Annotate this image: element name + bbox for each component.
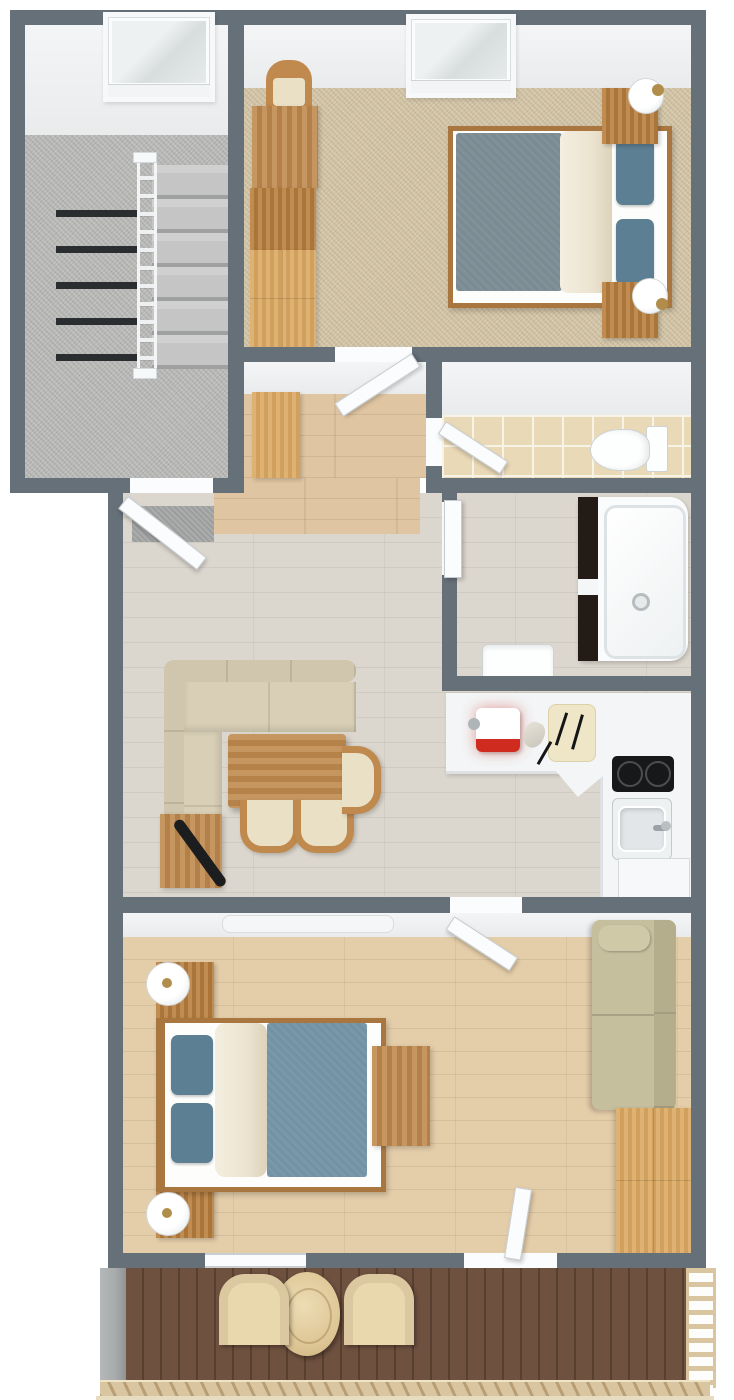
balcony-chair: [219, 1274, 289, 1345]
sofa-back-top: [164, 660, 356, 682]
bedroom-bottom-door-opening: [450, 897, 522, 913]
stair-railing: [137, 158, 157, 372]
dining-chair: [342, 746, 381, 814]
dining-table: [228, 734, 346, 808]
cooktop-burner: [645, 761, 671, 787]
table-lamp-arm: [162, 1208, 172, 1218]
bed-duvet: [456, 133, 562, 291]
wall-living-bedroom-right: [522, 897, 691, 913]
wall-stairwell-bottom-right: [213, 478, 244, 493]
bedroom-desk: [372, 1046, 430, 1146]
stairwell-skylight: [103, 12, 215, 102]
cooktop: [612, 756, 674, 792]
wall-stair-bedroom-divider: [228, 10, 244, 493]
bedroom-bottom-radiator: [222, 915, 394, 933]
wall-bedroom-bottom-south-1: [108, 1253, 205, 1268]
wall-bath-left-lower: [442, 575, 457, 676]
hall-to-living-transition: [214, 478, 420, 534]
sofa-seat-top: [184, 682, 356, 732]
bed-pillow: [616, 139, 654, 205]
desk: [252, 106, 318, 188]
bed-blanket: [560, 131, 612, 293]
wardrobe-seam: [250, 298, 316, 299]
balcony-rail-base: [96, 1396, 714, 1400]
bed-blanket: [215, 1023, 267, 1177]
coffee-machine: [476, 708, 520, 752]
bathtub-drain: [632, 593, 650, 611]
cutting-board: [548, 704, 596, 762]
bathtub-panel-gap: [578, 579, 598, 595]
wall-stairwell-bottom-left: [10, 478, 130, 493]
dresser: [250, 188, 316, 250]
wc-door-opening: [426, 418, 442, 466]
balcony-rail-ladder: [686, 1268, 716, 1388]
wall-bath-bottom: [442, 676, 691, 691]
bedroom-bottom-window: [205, 1253, 306, 1268]
balcony-chair: [344, 1274, 414, 1345]
bed-pillow: [171, 1103, 213, 1163]
wall-bedroom-top-south-right: [412, 347, 691, 362]
bedroom-sofa-bolster: [598, 925, 650, 951]
bed-duvet: [267, 1023, 367, 1177]
staircase-left-flight: [56, 200, 140, 372]
skylight-sill: [108, 84, 210, 97]
stair-tread: [56, 282, 140, 289]
bathroom-sink: [482, 644, 554, 678]
wall-bedroom-bottom-south-3: [557, 1253, 691, 1268]
sink-faucet-base: [661, 821, 671, 831]
bedroom-sofa: [592, 920, 676, 1110]
bedroom-sofa-back: [654, 920, 676, 1110]
bed-pillow: [616, 219, 654, 285]
bathtub: [578, 497, 688, 661]
table-lamp-arm: [652, 84, 664, 96]
wall-hall-wc-upper: [426, 362, 442, 418]
entry-door-opening: [130, 478, 213, 493]
skylight-glass: [112, 21, 206, 83]
wall-outer-left-stairwell: [10, 10, 25, 493]
stair-tread: [56, 210, 140, 217]
table-lamp-arm: [162, 978, 172, 988]
wall-living-bedroom-left: [108, 897, 450, 913]
double-bed-bottom: [156, 1018, 386, 1192]
bed-pillow: [171, 1035, 213, 1095]
wall-bedroom-top-south-left: [244, 347, 335, 362]
table-lamp-arm: [656, 298, 668, 310]
railing-end-cap: [133, 368, 157, 379]
wardrobe-seam: [282, 250, 283, 348]
wardrobe-bottom-bedroom: [616, 1108, 691, 1253]
stair-tread: [56, 354, 140, 361]
wall-bedroom-bottom-south-2: [306, 1253, 464, 1268]
dishwasher-front: [618, 858, 690, 899]
toilet-bowl: [590, 429, 650, 471]
hallway-wardrobe: [252, 392, 300, 478]
coffee-machine-knob: [468, 718, 480, 730]
wardrobe-seam: [616, 1180, 691, 1181]
bathroom-door: [444, 500, 462, 578]
dining-chair: [240, 800, 300, 853]
bathtub-basin: [604, 505, 686, 659]
wall-wc-bath-divider: [426, 478, 691, 493]
stair-tread: [56, 246, 140, 253]
railing-end-cap: [133, 152, 157, 163]
wall-outer-right: [691, 10, 706, 1268]
cooktop-burner: [617, 761, 643, 787]
kitchen-sink: [612, 798, 672, 860]
skylight-sill: [411, 80, 511, 93]
wardrobe-top-bedroom: [250, 250, 316, 348]
balcony-table-ring: [286, 1288, 332, 1344]
desk-chair-seat: [273, 78, 305, 106]
wc-wall-face: [442, 362, 691, 415]
bedroom-sofa-seam: [592, 1014, 654, 1016]
wall-outer-left-lower: [108, 478, 123, 1268]
bedroom-top-skylight: [406, 14, 516, 98]
staircase-right-flight: [152, 165, 228, 369]
stair-tread: [56, 318, 140, 325]
skylight-glass: [415, 23, 507, 79]
floor-plan: [0, 0, 734, 1400]
balcony-rail-concrete: [100, 1268, 126, 1390]
